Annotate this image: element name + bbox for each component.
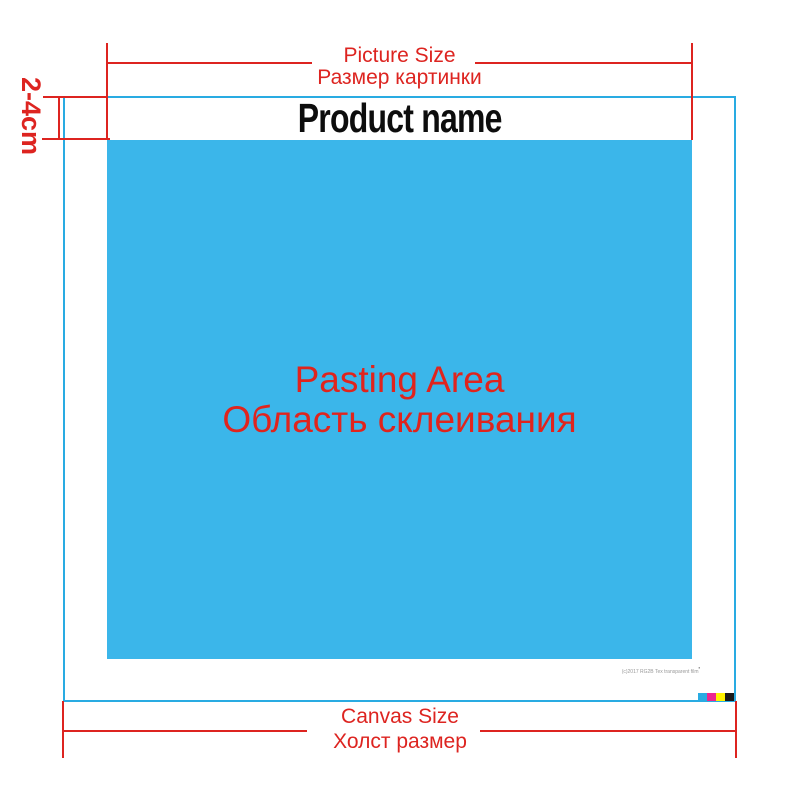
picture-size-label-ru: Размер картинки [107, 66, 692, 90]
margin-bracket-stem [58, 96, 60, 140]
product-name-text: Product name [298, 95, 502, 142]
canvas-size-label-en: Canvas Size [63, 705, 737, 729]
swatch-cyan-icon [698, 693, 707, 701]
pasting-area-label-ru: Область склеивания [222, 400, 576, 440]
fine-print-text: (c)2017 RG2B Tex transparent film [622, 669, 699, 675]
cmyk-color-bar [698, 693, 734, 701]
canvas-size-label-ru: Холст размер [63, 730, 737, 754]
margin-size-label: 2-4cm [16, 70, 46, 162]
product-name-title: Product name [107, 97, 692, 140]
swatch-black-icon [725, 693, 734, 701]
margin-bracket-cap-bottom [42, 138, 110, 140]
fine-print-mark-icon: ▪ [699, 665, 700, 670]
margin-bracket-cap-top [43, 96, 108, 98]
picture-size-label-en: Picture Size [107, 44, 692, 68]
fine-print: (c)2017 RG2B Tex transparent film▪ [622, 665, 700, 675]
swatch-yellow-icon [716, 693, 725, 701]
swatch-magenta-icon [707, 693, 716, 701]
pasting-area: Pasting Area Область склеивания [107, 140, 692, 659]
pasting-area-label-en: Pasting Area [295, 360, 505, 400]
